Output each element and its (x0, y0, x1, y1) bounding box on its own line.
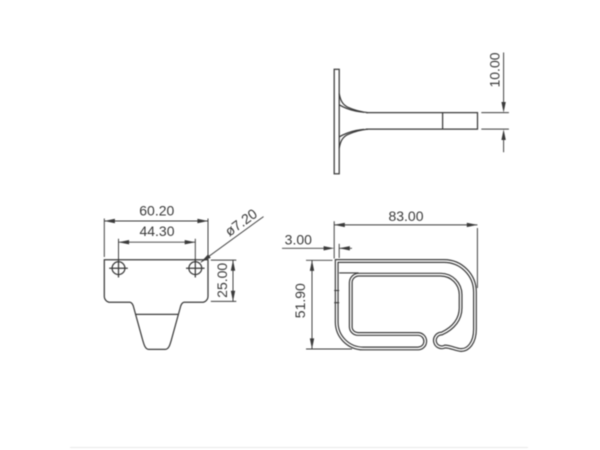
svg-text:ø7.20: ø7.20 (222, 205, 261, 239)
svg-text:51.90: 51.90 (292, 283, 308, 318)
svg-text:44.30: 44.30 (139, 223, 174, 239)
svg-text:60.20: 60.20 (139, 202, 174, 218)
svg-text:25.00: 25.00 (214, 263, 230, 298)
svg-text:10.00: 10.00 (486, 52, 502, 87)
svg-text:3.00: 3.00 (285, 231, 312, 247)
svg-text:83.00: 83.00 (388, 208, 423, 224)
